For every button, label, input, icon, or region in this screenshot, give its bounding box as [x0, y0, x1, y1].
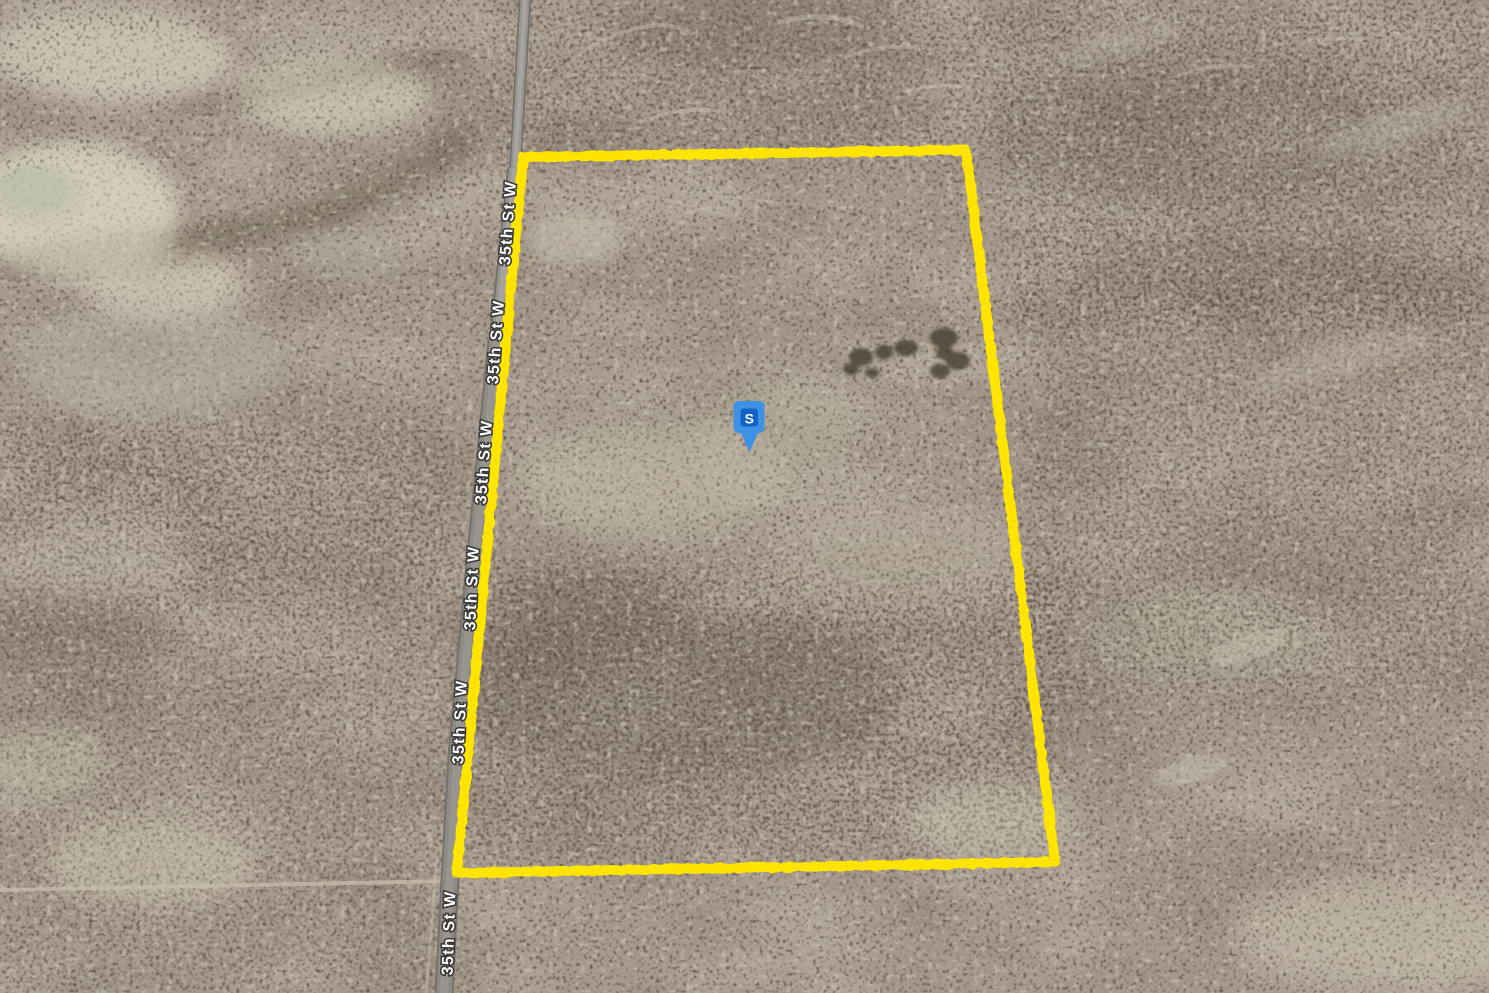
svg-text:S: S: [745, 411, 754, 427]
svg-text:35th St W: 35th St W: [440, 890, 460, 975]
